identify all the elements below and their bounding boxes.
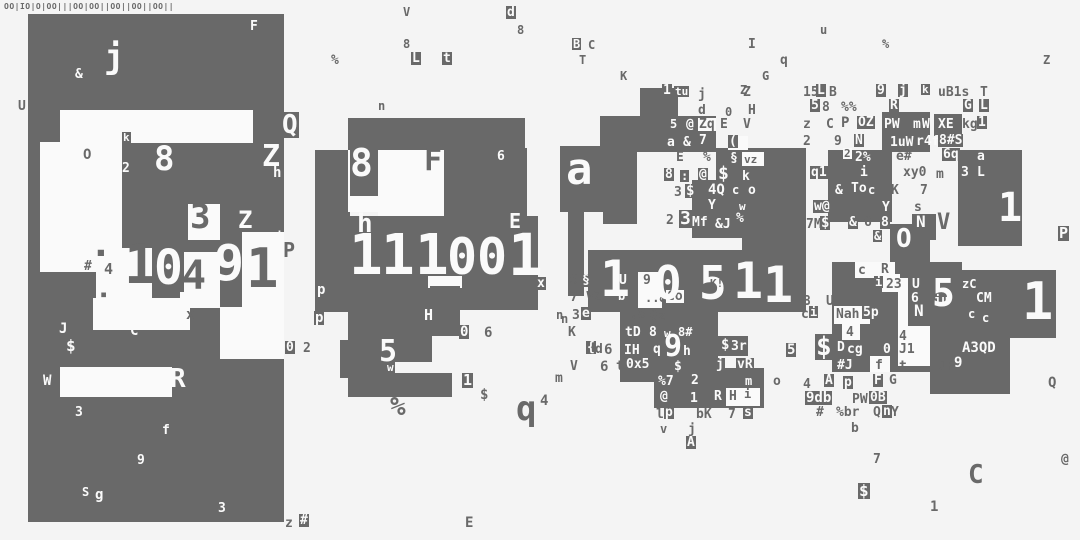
art-glyph: 1	[930, 500, 938, 514]
art-glyph: G	[963, 99, 973, 112]
art-glyph: K!	[710, 278, 723, 289]
art-glyph: d	[698, 104, 706, 117]
art-glyph: %7	[658, 375, 674, 388]
art-glyph: d	[595, 343, 603, 356]
art-glyph: 2	[803, 135, 811, 148]
art-glyph: (	[728, 135, 738, 148]
art-glyph: 1	[733, 256, 763, 306]
art-glyph: A	[899, 292, 907, 305]
art-glyph: w@	[813, 200, 831, 213]
art-glyph: 4	[104, 262, 113, 277]
art-glyph: 1uW	[890, 136, 913, 149]
art-glyph: #	[299, 514, 309, 527]
art-glyph: 1	[246, 242, 279, 296]
art-glyph: c	[968, 308, 975, 320]
art-glyph: :	[680, 170, 689, 182]
art-glyph: @	[660, 390, 668, 403]
art-glyph: j	[715, 358, 725, 371]
art-glyph: 5	[786, 343, 796, 357]
art-glyph: L	[411, 52, 421, 65]
art-glyph: 6	[484, 326, 492, 340]
art-glyph: 8	[664, 168, 674, 181]
art-glyph: C	[130, 324, 138, 338]
art-glyph: 2	[122, 162, 130, 175]
art-glyph: B	[572, 38, 581, 50]
art-glyph: 1	[977, 116, 987, 129]
art-glyph: PW	[884, 118, 900, 131]
art-glyph: 0	[477, 232, 507, 282]
art-glyph: j	[698, 88, 706, 101]
art-glyph: o	[773, 375, 781, 388]
art-glyph: T	[579, 54, 586, 66]
art-glyph: $	[815, 334, 833, 360]
art-glyph: L	[979, 99, 989, 112]
art-glyph: 9	[643, 274, 651, 287]
art-glyph: Zq	[698, 118, 716, 131]
art-glyph: 0	[459, 325, 469, 339]
art-glyph: m	[912, 118, 922, 131]
art-glyph: g	[95, 488, 103, 502]
art-glyph: E	[720, 118, 728, 131]
art-glyph: CM	[976, 292, 992, 305]
art-glyph: q1	[810, 166, 828, 179]
art-glyph: 6	[600, 360, 608, 374]
art-glyph: s	[743, 406, 753, 419]
art-glyph: d	[506, 6, 516, 19]
art-glyph: 2	[303, 342, 311, 355]
art-glyph: h	[273, 166, 281, 180]
art-glyph: &	[683, 136, 691, 149]
art-glyph: Q	[873, 406, 881, 419]
art-block	[93, 298, 190, 330]
art-glyph: A3QD	[962, 341, 996, 355]
art-glyph: $	[720, 338, 730, 352]
art-block	[220, 307, 284, 359]
art-glyph: J1	[899, 343, 915, 356]
art-glyph: 3	[75, 406, 83, 419]
art-glyph: b	[851, 422, 859, 435]
art-glyph: $	[717, 165, 730, 183]
art-glyph: l	[656, 408, 664, 421]
art-glyph: %	[703, 151, 711, 164]
art-glyph: %	[331, 54, 339, 67]
art-glyph: R	[889, 99, 899, 112]
art-glyph: a	[566, 148, 593, 192]
art-glyph: a	[976, 150, 986, 163]
art-glyph: $	[66, 338, 76, 354]
art-glyph: I	[748, 38, 756, 51]
art-glyph: U	[826, 295, 834, 308]
art-glyph: 1	[381, 228, 415, 284]
art-glyph: 5	[670, 118, 677, 130]
art-glyph: §	[581, 274, 591, 287]
art-glyph: 3	[572, 309, 580, 322]
art-glyph: c	[731, 184, 740, 196]
art-block	[378, 196, 444, 216]
art-glyph: 4	[846, 326, 854, 339]
art-glyph: @	[686, 118, 694, 131]
art-glyph: Mf	[692, 216, 708, 229]
art-glyph: Z	[743, 86, 751, 99]
art-glyph: bK	[696, 408, 712, 421]
art-glyph: q	[516, 392, 536, 426]
art-glyph: 1	[763, 260, 793, 310]
art-glyph: c	[867, 184, 876, 196]
art-glyph: u	[820, 24, 827, 36]
art-glyph: n	[556, 309, 563, 321]
art-glyph: C	[968, 462, 984, 488]
art-glyph: &	[848, 216, 858, 229]
art-glyph: G	[762, 70, 769, 82]
art-glyph: a	[666, 136, 676, 149]
art-glyph: E	[676, 151, 684, 164]
art-glyph: #	[816, 406, 824, 419]
art-glyph: v	[660, 423, 667, 435]
art-glyph: 3	[218, 502, 226, 515]
art-glyph: F	[250, 20, 258, 33]
art-glyph: m	[744, 375, 753, 387]
art-glyph: m	[936, 168, 944, 181]
art-glyph: 1	[349, 228, 383, 284]
art-glyph: w	[386, 362, 395, 373]
art-glyph: 0B	[869, 391, 887, 404]
art-glyph: z	[803, 118, 811, 131]
art-glyph: %br	[836, 406, 859, 419]
art-glyph: V	[743, 118, 751, 131]
art-glyph: 9	[834, 135, 842, 148]
art-glyph: vR	[736, 358, 754, 371]
art-glyph: R	[881, 263, 889, 276]
header-pattern-text: OO|IO|O|OO|||OO|OO||OO||OO||OO||	[4, 2, 174, 11]
art-glyph: p	[316, 283, 326, 297]
art-glyph: W	[922, 118, 930, 131]
art-glyph: 8	[880, 216, 890, 229]
art-glyph: 0	[285, 341, 295, 354]
art-glyph: k	[921, 84, 930, 95]
art-glyph: k	[741, 170, 751, 183]
art-glyph: 1	[600, 254, 630, 304]
art-glyph: L	[976, 166, 986, 179]
art-glyph: N	[854, 134, 864, 147]
art-glyph: xy0	[903, 166, 926, 179]
art-glyph: 3	[960, 166, 970, 179]
art-glyph: 4	[182, 256, 206, 296]
art-glyph: Y	[882, 201, 890, 214]
art-glyph: h	[683, 345, 691, 358]
art-glyph: S	[570, 274, 578, 287]
art-glyph: 7	[570, 291, 578, 304]
art-glyph: 9	[214, 238, 244, 288]
art-glyph: n	[378, 100, 385, 112]
art-glyph: C	[588, 39, 595, 51]
art-glyph: %	[390, 394, 406, 420]
art-glyph: 4Q	[708, 183, 725, 197]
art-glyph: D	[836, 341, 846, 354]
art-glyph: c	[982, 312, 989, 324]
art-glyph: S	[82, 486, 89, 498]
art-glyph: 5	[810, 99, 820, 112]
art-glyph: %	[736, 212, 744, 225]
art-glyph: i	[874, 276, 883, 288]
art-glyph: $	[674, 360, 682, 373]
art-glyph: cg	[847, 343, 863, 356]
art-glyph: F	[424, 146, 442, 176]
art-glyph: 6q	[942, 148, 960, 161]
art-glyph: e	[581, 307, 591, 320]
art-glyph: m	[555, 372, 563, 385]
art-glyph: @	[1061, 453, 1069, 466]
art-glyph: U	[912, 278, 920, 291]
art-glyph: j	[898, 84, 908, 97]
art-glyph: 1	[124, 238, 157, 292]
art-glyph: x	[186, 308, 194, 322]
art-glyph: A	[686, 436, 696, 449]
art-glyph: t	[616, 360, 624, 373]
art-glyph: q	[780, 54, 788, 67]
art-glyph: O	[83, 148, 91, 162]
art-glyph: r4f	[916, 135, 939, 148]
art-glyph: V	[403, 6, 410, 18]
art-glyph: &	[873, 230, 882, 242]
art-glyph: 3	[679, 210, 692, 228]
art-glyph: $	[480, 388, 488, 402]
art-glyph: JF	[939, 360, 955, 373]
art-glyph: f	[875, 359, 883, 372]
art-glyph: 2	[843, 148, 852, 159]
art-glyph: 23	[886, 278, 902, 291]
art-glyph: t	[899, 360, 907, 373]
art-glyph: W	[43, 374, 51, 388]
art-glyph: 7	[873, 453, 881, 466]
art-block	[430, 286, 460, 336]
art-glyph: 4	[540, 394, 548, 408]
art-glyph: L	[816, 84, 826, 97]
art-glyph: 8	[648, 326, 658, 339]
art-glyph: IH	[624, 344, 640, 357]
art-glyph: 6	[604, 343, 612, 357]
art-glyph: 3r	[731, 340, 747, 353]
art-glyph: 9	[137, 454, 145, 467]
art-glyph: i	[744, 388, 751, 400]
art-glyph: zC	[962, 278, 976, 290]
art-glyph: #J	[836, 359, 854, 372]
art-glyph: ▪	[96, 244, 106, 260]
art-glyph: H	[748, 104, 756, 117]
art-glyph: To	[850, 182, 868, 195]
art-glyph: Q	[281, 112, 299, 138]
art-glyph: N	[914, 303, 924, 319]
art-glyph: i	[809, 306, 818, 318]
art-glyph: 0	[654, 260, 682, 306]
art-glyph: $	[858, 483, 870, 499]
art-glyph: tu	[674, 86, 689, 97]
art-glyph: E	[465, 516, 473, 530]
art-glyph: P	[1058, 226, 1069, 241]
art-glyph: 9db	[805, 391, 832, 405]
art-glyph: P	[283, 240, 295, 260]
art-glyph: Y	[708, 199, 716, 212]
art-glyph: 1	[998, 188, 1022, 228]
art-glyph: OZ	[857, 116, 875, 129]
art-glyph: &J	[714, 218, 732, 231]
art-glyph: tD	[624, 326, 642, 339]
art-glyph: Z	[238, 208, 252, 232]
art-glyph: Y	[891, 406, 899, 419]
artwork-canvas: OO|IO|O|OO|||OO|OO||OO||OO||OO|| U&jF%Qk…	[0, 0, 1080, 540]
art-glyph: 3	[190, 200, 210, 234]
art-glyph: H	[729, 390, 737, 403]
art-glyph: t	[442, 52, 452, 65]
art-block	[60, 367, 172, 397]
art-glyph: k	[122, 132, 131, 143]
art-glyph: G	[889, 374, 897, 387]
art-glyph: ▪	[100, 288, 107, 300]
art-glyph: $	[685, 184, 695, 198]
art-glyph: z	[285, 517, 293, 530]
art-glyph: j	[104, 40, 124, 74]
art-glyph: o	[748, 184, 756, 197]
art-glyph: 7	[920, 184, 928, 197]
art-glyph: 0x5	[625, 358, 650, 371]
art-glyph: #	[84, 260, 92, 273]
art-glyph: K	[620, 70, 627, 82]
art-glyph: 1	[415, 228, 449, 284]
art-glyph: H	[424, 308, 433, 323]
art-glyph: %%	[841, 101, 857, 114]
art-glyph: K	[891, 184, 899, 197]
art-glyph: 0	[883, 343, 891, 356]
art-glyph: %	[882, 38, 889, 50]
art-glyph: 8	[822, 101, 830, 114]
art-glyph: 0	[153, 244, 184, 292]
art-glyph: R	[713, 390, 723, 403]
art-glyph: iu	[934, 294, 948, 306]
art-glyph: §	[729, 152, 739, 165]
art-glyph: 1	[1022, 276, 1053, 328]
art-glyph: N	[916, 214, 926, 230]
art-glyph: q	[653, 343, 661, 356]
art-glyph: F	[873, 374, 883, 387]
art-glyph: Z	[1043, 54, 1050, 66]
art-glyph: 8#S	[938, 134, 963, 147]
art-glyph: 9	[876, 84, 886, 97]
art-glyph: 2	[690, 374, 700, 387]
art-glyph: 6	[864, 216, 872, 229]
art-glyph: 3	[674, 186, 682, 199]
art-glyph: 7	[728, 408, 736, 421]
art-glyph: 8	[154, 142, 174, 176]
art-glyph: 6z	[650, 310, 666, 323]
art-glyph: 9	[954, 356, 962, 370]
art-glyph: p	[314, 311, 324, 325]
art-glyph: B	[829, 86, 837, 99]
art-glyph: J	[58, 322, 68, 336]
art-glyph: e#	[896, 150, 912, 163]
art-glyph: 8	[350, 144, 373, 182]
art-glyph: 9	[664, 332, 682, 362]
art-glyph: 7	[698, 134, 708, 147]
art-glyph: 8	[403, 38, 410, 50]
art-glyph: 1	[690, 392, 698, 405]
art-glyph: A	[824, 374, 834, 387]
art-glyph: XE	[938, 118, 954, 131]
art-glyph: ,8	[630, 308, 646, 321]
art-glyph: C	[826, 118, 834, 131]
art-glyph: c	[858, 264, 866, 277]
art-glyph: &	[75, 68, 83, 81]
art-glyph: K	[568, 326, 576, 339]
art-glyph: 2%	[855, 151, 871, 164]
art-glyph: i	[860, 166, 868, 179]
art-glyph: $	[820, 216, 830, 230]
art-glyph: &	[835, 184, 843, 197]
art-glyph: 1	[462, 373, 473, 388]
art-glyph: O	[896, 226, 912, 252]
art-glyph: P	[841, 116, 849, 130]
art-glyph: R	[170, 366, 186, 392]
art-glyph: 1	[508, 226, 543, 284]
art-glyph: Nah	[836, 308, 859, 321]
art-glyph: 6	[497, 150, 505, 163]
art-glyph: 5p	[862, 306, 880, 319]
art-glyph: vz	[744, 154, 757, 165]
art-glyph: U	[18, 100, 26, 113]
art-glyph: 1	[662, 84, 672, 97]
art-glyph: c	[801, 308, 809, 321]
art-glyph: kg	[962, 118, 978, 131]
art-glyph: Q	[1048, 376, 1056, 390]
art-glyph: V	[570, 360, 578, 373]
art-glyph: 2	[666, 214, 674, 227]
art-glyph: p	[664, 406, 674, 419]
art-glyph: f	[162, 424, 170, 437]
art-glyph: @	[698, 168, 708, 181]
art-glyph: V	[937, 212, 950, 234]
art-glyph: p	[843, 376, 853, 389]
art-glyph: 8	[517, 24, 524, 36]
art-glyph: 0	[447, 232, 477, 282]
